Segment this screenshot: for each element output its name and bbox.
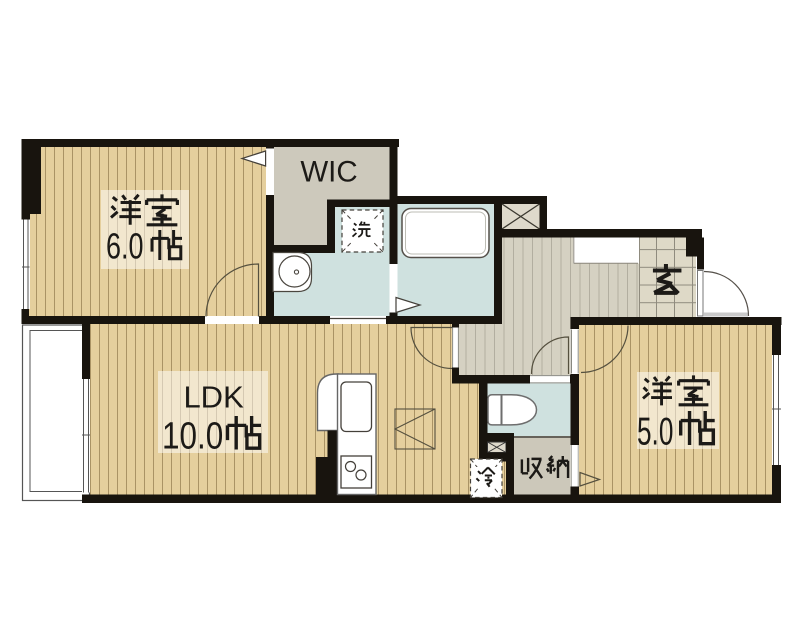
svg-text:5.0: 5.0	[637, 410, 673, 453]
svg-text:WIC: WIC	[300, 155, 357, 188]
svg-text:LDK: LDK	[183, 380, 244, 415]
svg-text:6.0: 6.0	[106, 226, 144, 267]
svg-text:10.0: 10.0	[162, 416, 223, 458]
